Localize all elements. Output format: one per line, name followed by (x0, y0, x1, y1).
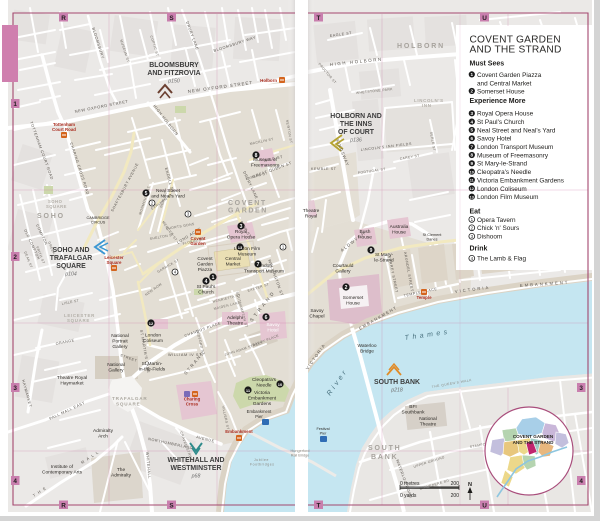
svg-text:Holborn: Holborn (260, 78, 277, 83)
svg-text:SQUARE: SQUARE (67, 318, 90, 323)
svg-text:London Transport Museum: London Transport Museum (477, 144, 553, 151)
svg-text:OF COURT: OF COURT (338, 129, 375, 136)
svg-text:2: 2 (13, 254, 17, 261)
svg-text:Square: Square (107, 260, 122, 265)
svg-text:3: 3 (471, 111, 474, 116)
svg-text:3: 3 (240, 224, 243, 230)
svg-text:Savoy: Savoy (310, 308, 324, 314)
svg-text:House: House (392, 230, 406, 236)
svg-text:SOHO: SOHO (37, 213, 65, 220)
svg-text:St Paul's Church: St Paul's Church (477, 119, 525, 126)
svg-text:Temple: Temple (416, 295, 432, 300)
svg-text:St Clement: St Clement (423, 233, 443, 237)
svg-text:in-the-Fields: in-the-Fields (139, 367, 166, 373)
svg-text:National: National (419, 416, 437, 422)
svg-text:Rail Bridge: Rail Bridge (291, 454, 310, 458)
svg-text:HOLBORN: HOLBORN (397, 43, 445, 50)
svg-text:SOUTH: SOUTH (368, 445, 402, 452)
svg-text:COVENT GARDEN: COVENT GARDEN (513, 434, 554, 439)
svg-text:Admiralty: Admiralty (111, 473, 132, 479)
svg-text:200: 200 (451, 481, 460, 487)
svg-text:Neal Street and Neal's Yard: Neal Street and Neal's Yard (477, 127, 556, 134)
svg-text:Cleopatra's: Cleopatra's (252, 377, 277, 383)
svg-text:6: 6 (265, 315, 268, 321)
svg-text:Freemasonry: Freemasonry (251, 163, 280, 169)
svg-text:200: 200 (451, 493, 460, 499)
svg-text:10: 10 (278, 382, 283, 387)
svg-text:CAMBRIDGE: CAMBRIDGE (87, 216, 110, 220)
svg-text:Somerset House: Somerset House (477, 88, 525, 95)
svg-text:THE INNS: THE INNS (340, 121, 373, 128)
svg-text:Chick 'n' Sours: Chick 'n' Sours (477, 225, 519, 232)
svg-text:7: 7 (257, 262, 260, 268)
svg-text:Covent: Covent (197, 256, 213, 262)
svg-text:Gardens: Gardens (253, 401, 272, 407)
svg-text:12: 12 (149, 321, 154, 326)
svg-text:U: U (482, 15, 487, 22)
svg-text:S: S (169, 503, 174, 510)
svg-text:Victoria: Victoria (254, 390, 270, 396)
svg-text:10: 10 (470, 170, 474, 174)
svg-text:Cross: Cross (186, 402, 199, 407)
svg-text:SQUARE: SQUARE (116, 402, 140, 407)
svg-text:4: 4 (13, 478, 17, 485)
svg-text:Footbridges: Footbridges (250, 463, 275, 467)
svg-text:R: R (61, 503, 66, 510)
svg-text:8: 8 (471, 153, 474, 158)
svg-text:National: National (111, 333, 129, 339)
svg-text:Dishoom: Dishoom (477, 234, 502, 241)
svg-text:8: 8 (255, 153, 258, 159)
svg-text:3: 3 (579, 385, 583, 392)
svg-text:Museum of Freemasonry: Museum of Freemasonry (477, 152, 549, 159)
svg-text:GARDEN: GARDEN (228, 208, 268, 215)
svg-text:4: 4 (471, 119, 474, 124)
svg-text:Pier: Pier (320, 432, 327, 436)
svg-text:COVENT: COVENT (228, 200, 267, 207)
svg-text:Theatre: Theatre (227, 321, 244, 327)
svg-text:WESTMINSTER: WESTMINSTER (171, 465, 222, 472)
svg-text:Church: Church (198, 290, 214, 296)
svg-text:Market: Market (226, 262, 241, 268)
svg-text:House: House (346, 301, 360, 307)
svg-text:Opera House: Opera House (227, 235, 256, 241)
svg-text:London Coliseum: London Coliseum (477, 186, 527, 193)
svg-text:Drink: Drink (470, 246, 488, 253)
svg-text:Savoy Hotel: Savoy Hotel (477, 136, 511, 143)
svg-text:Chapel: Chapel (309, 314, 324, 320)
svg-text:11: 11 (470, 179, 474, 183)
svg-text:TRAFALGAR: TRAFALGAR (112, 396, 148, 401)
svg-text:5: 5 (471, 128, 474, 133)
svg-text:Royal: Royal (305, 214, 317, 220)
svg-text:Danes: Danes (427, 238, 438, 242)
svg-text:Opera Tavern: Opera Tavern (477, 217, 516, 224)
svg-text:St Mary-le-Strand: St Mary-le-Strand (477, 161, 528, 168)
svg-text:SOUTH BANK: SOUTH BANK (374, 379, 420, 386)
svg-text:HOLBORN AND: HOLBORN AND (330, 113, 381, 120)
svg-text:Arch: Arch (98, 434, 108, 440)
svg-text:9: 9 (471, 161, 474, 166)
svg-text:Somerset: Somerset (343, 295, 364, 301)
svg-text:Garden: Garden (197, 262, 213, 268)
svg-text:Bush: Bush (360, 229, 371, 235)
svg-text:and Central Market: and Central Market (477, 80, 532, 87)
svg-text:Court Road: Court Road (52, 127, 76, 132)
svg-text:Experience More: Experience More (470, 98, 526, 105)
svg-text:Covent Garden Piazza: Covent Garden Piazza (477, 72, 542, 79)
svg-text:13: 13 (470, 195, 474, 199)
svg-text:13: 13 (238, 245, 243, 250)
svg-text:Embankment: Embankment (225, 429, 253, 434)
svg-text:Theatre Royal: Theatre Royal (57, 375, 87, 381)
svg-text:p104: p104 (64, 272, 77, 278)
svg-text:KEMBLE ST: KEMBLE ST (311, 167, 337, 171)
svg-text:p218: p218 (390, 388, 403, 394)
svg-text:1: 1 (471, 72, 474, 77)
svg-text:Hotel: Hotel (267, 328, 278, 334)
svg-text:1: 1 (212, 275, 215, 281)
svg-text:BFI: BFI (409, 404, 416, 410)
svg-text:Hungerford: Hungerford (291, 449, 310, 453)
svg-text:Savoy: Savoy (266, 322, 280, 328)
svg-text:12: 12 (470, 187, 474, 191)
svg-text:Embankment: Embankment (248, 396, 277, 402)
svg-text:T: T (317, 15, 321, 22)
svg-text:p150: p150 (167, 79, 180, 85)
svg-text:London: London (145, 333, 161, 339)
svg-text:2: 2 (345, 285, 348, 291)
svg-text:Royal Opera House: Royal Opera House (477, 111, 534, 118)
svg-text:AND THE STRAND: AND THE STRAND (470, 45, 562, 56)
svg-text:National: National (107, 362, 125, 368)
svg-text:WHITEHALL AND: WHITEHALL AND (167, 457, 224, 464)
svg-text:INN: INN (422, 103, 432, 108)
svg-text:SOHO AND: SOHO AND (53, 247, 90, 254)
svg-text:Cleopatra's Needle: Cleopatra's Needle (477, 169, 532, 176)
svg-text:Waterloo: Waterloo (357, 343, 376, 349)
svg-text:Australia: Australia (390, 224, 409, 230)
svg-text:London Film Museum: London Film Museum (477, 194, 538, 201)
svg-text:T: T (317, 503, 321, 510)
svg-text:BANK: BANK (371, 454, 398, 461)
svg-text:le-Strand: le-Strand (374, 258, 394, 264)
svg-text:House: House (358, 235, 372, 241)
svg-text:Victoria Embankment Gardens: Victoria Embankment Gardens (477, 177, 564, 184)
svg-text:Pier: Pier (255, 414, 263, 419)
svg-text:U: U (482, 503, 487, 510)
svg-text:Garden: Garden (190, 241, 206, 246)
svg-text:Gallery: Gallery (108, 368, 124, 374)
svg-text:0 yards: 0 yards (400, 493, 417, 499)
svg-text:1: 1 (13, 101, 17, 108)
svg-text:Institute of: Institute of (51, 464, 74, 470)
svg-text:Courtauld: Courtauld (333, 263, 354, 269)
svg-text:3: 3 (13, 385, 17, 392)
svg-text:Bridge: Bridge (360, 349, 374, 355)
svg-text:5: 5 (145, 191, 148, 197)
svg-text:Contemporary Arts: Contemporary Arts (42, 470, 83, 476)
svg-text:Adelphi: Adelphi (227, 315, 243, 321)
svg-text:Gallery: Gallery (112, 344, 128, 350)
svg-text:BLOOMSBURY: BLOOMSBURY (149, 62, 199, 69)
svg-text:Coliseum: Coliseum (143, 338, 163, 344)
svg-text:Haymarket: Haymarket (60, 381, 84, 387)
svg-text:The Lamb & Flag: The Lamb & Flag (477, 256, 526, 263)
svg-text:The: The (117, 467, 126, 473)
svg-text:Theatre: Theatre (420, 422, 437, 428)
svg-text:S: S (169, 15, 174, 22)
svg-text:4: 4 (205, 279, 208, 285)
svg-text:Piazza: Piazza (198, 267, 213, 273)
svg-text:SQUARE: SQUARE (46, 204, 67, 209)
svg-text:AND FITZROVIA: AND FITZROVIA (147, 70, 200, 77)
svg-text:R: R (61, 15, 66, 22)
svg-text:SQUARE: SQUARE (56, 263, 86, 270)
svg-text:Gallery: Gallery (335, 269, 351, 275)
svg-text:2: 2 (471, 89, 474, 94)
svg-text:Central: Central (225, 256, 240, 262)
svg-text:Jubilee: Jubilee (254, 458, 269, 462)
svg-text:Festival: Festival (316, 427, 329, 431)
svg-text:CIRCUS: CIRCUS (91, 221, 106, 225)
svg-text:Needle: Needle (256, 383, 272, 389)
svg-text:Portrait: Portrait (112, 339, 128, 345)
svg-text:9: 9 (370, 248, 373, 254)
svg-text:Neal Street: Neal Street (156, 188, 181, 194)
svg-text:0 metres: 0 metres (400, 481, 420, 487)
svg-text:7: 7 (471, 144, 474, 149)
svg-text:p136: p136 (349, 138, 362, 144)
svg-text:Eat: Eat (470, 209, 482, 216)
svg-text:AND THE STRAND: AND THE STRAND (513, 440, 555, 445)
svg-text:Theatre: Theatre (303, 208, 320, 214)
svg-text:Must Sees: Must Sees (470, 61, 505, 68)
svg-text:St Martin-: St Martin- (142, 361, 163, 367)
svg-text:6: 6 (471, 136, 474, 141)
svg-text:p68: p68 (191, 474, 201, 480)
svg-text:Southbank: Southbank (402, 410, 426, 416)
svg-text:St Mary-: St Mary- (375, 252, 394, 258)
svg-text:and Neal's Yard: and Neal's Yard (151, 194, 185, 200)
svg-text:Transport Museum: Transport Museum (244, 269, 284, 275)
svg-text:WILLIAM IV ST: WILLIAM IV ST (168, 353, 202, 357)
svg-text:4: 4 (579, 478, 583, 485)
svg-text:Admiralty: Admiralty (93, 428, 114, 434)
